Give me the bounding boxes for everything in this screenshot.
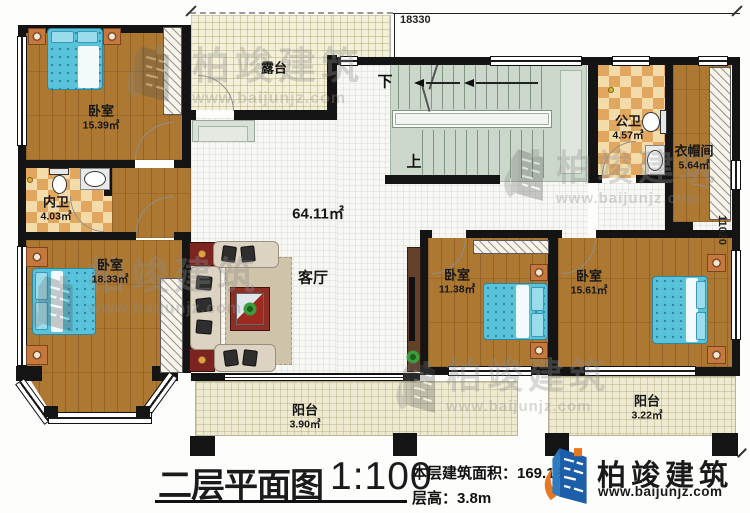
title-underline bbox=[155, 500, 407, 503]
room-name: 卧室 bbox=[571, 270, 608, 285]
bed-sheet bbox=[78, 46, 99, 88]
bed-pillow bbox=[696, 281, 706, 309]
room-name: 内卫 bbox=[41, 196, 72, 211]
wall bbox=[44, 406, 58, 417]
sofa-cushion bbox=[195, 319, 212, 334]
room-area: 5.64㎡ bbox=[674, 159, 713, 171]
stair-direction-line bbox=[476, 82, 538, 84]
roof-outline bbox=[190, 12, 393, 14]
floor-height-text: 层高：3.8m bbox=[412, 487, 491, 508]
wall bbox=[191, 110, 196, 120]
room-label-balcony-right: 阳台 3.22㎡ bbox=[632, 395, 663, 422]
living-area-label: 64.11㎡ bbox=[292, 205, 344, 222]
wall bbox=[420, 230, 432, 238]
wall bbox=[136, 406, 150, 417]
stair-railing bbox=[392, 110, 552, 128]
room-label-public-bath: 公卫 4.57㎡ bbox=[613, 115, 644, 142]
room-area: 15.61㎡ bbox=[571, 284, 608, 296]
sink-icon bbox=[84, 171, 106, 187]
room-name: 衣帽间 bbox=[674, 145, 713, 160]
wall bbox=[673, 222, 693, 230]
room-label-inner-bath: 内卫 4.03㎡ bbox=[41, 196, 72, 223]
nightstand bbox=[26, 345, 48, 365]
brand-logo-icon bbox=[538, 444, 592, 513]
bed-sheet bbox=[516, 285, 529, 338]
watermark-logo-icon bbox=[24, 265, 78, 348]
room-name: 阳台 bbox=[290, 404, 321, 419]
watermark-logo-icon bbox=[390, 356, 440, 423]
column bbox=[190, 436, 215, 456]
watermark-url: www.baijunjz.com bbox=[88, 300, 260, 318]
room-label-living: 客厅 bbox=[298, 269, 328, 286]
watermark-url: www.baijunjz.com bbox=[192, 90, 364, 108]
wall bbox=[18, 160, 135, 168]
room-name: 卧室 bbox=[83, 105, 120, 120]
room-label-balcony-left: 阳台 3.90㎡ bbox=[290, 404, 321, 431]
faucet-icon bbox=[27, 177, 33, 183]
dimension-tick bbox=[731, 5, 742, 16]
room-name: 阳台 bbox=[632, 395, 663, 410]
room-label-bedroom-bm: 卧室 11.38㎡ bbox=[439, 269, 475, 296]
window bbox=[731, 250, 741, 340]
room-area: 4.57㎡ bbox=[613, 129, 644, 141]
watermark: 柏竣建筑 www.baijunjz.com bbox=[192, 48, 364, 108]
stair-label-up: 上 bbox=[406, 151, 421, 172]
nightstand bbox=[28, 28, 46, 45]
watermark-logo-icon bbox=[498, 145, 548, 210]
wall bbox=[234, 110, 337, 120]
wall bbox=[385, 175, 500, 184]
window bbox=[17, 36, 27, 146]
terrace-step-inner bbox=[198, 126, 248, 142]
bed-pillow bbox=[696, 312, 706, 340]
wall bbox=[548, 238, 558, 367]
window bbox=[612, 56, 650, 66]
stair-direction-line bbox=[426, 82, 460, 84]
room-label-terrace: 露台 bbox=[261, 62, 287, 77]
nightstand bbox=[103, 28, 121, 45]
room-area: 15.39㎡ bbox=[83, 119, 120, 131]
watermark-name: 柏竣建筑 bbox=[446, 358, 610, 394]
toilet-icon bbox=[660, 110, 667, 134]
watermark-url: www.baijunjz.com bbox=[556, 190, 720, 207]
nightstand bbox=[26, 247, 48, 267]
column bbox=[393, 433, 417, 456]
wall bbox=[18, 232, 136, 240]
room-name: 客厅 bbox=[298, 269, 328, 286]
wall bbox=[182, 33, 191, 168]
room-name: 卧室 bbox=[92, 259, 129, 274]
closet bbox=[473, 240, 549, 254]
room-label-cloakroom: 衣帽间 5.64㎡ bbox=[674, 145, 713, 172]
stair-direction-arrow bbox=[414, 79, 424, 87]
faucet-icon bbox=[608, 87, 614, 93]
nightstand bbox=[707, 254, 726, 272]
room-name: 露台 bbox=[261, 62, 287, 77]
bed-pillow bbox=[51, 31, 74, 43]
bed-pillow bbox=[531, 313, 544, 337]
wall bbox=[466, 230, 562, 238]
wall bbox=[174, 160, 191, 168]
nightstand bbox=[707, 346, 726, 364]
toilet-icon bbox=[49, 168, 69, 175]
bed-pillow bbox=[531, 287, 544, 311]
toilet-icon bbox=[642, 112, 660, 132]
bed-pillow bbox=[77, 31, 98, 43]
floor-plan-page: 18330 11020 卧室 15.39㎡ 内卫 4.03㎡ 卧室 18.33㎡… bbox=[0, 0, 750, 513]
window bbox=[224, 374, 404, 381]
window bbox=[698, 56, 728, 66]
dimension-top: 18330 bbox=[400, 14, 431, 26]
side-table bbox=[189, 348, 215, 372]
watermark: 柏竣建筑 www.baijunjz.com bbox=[446, 358, 610, 415]
nightstand bbox=[530, 264, 548, 281]
room-area: 64.11㎡ bbox=[292, 205, 344, 222]
room-area: 11.38㎡ bbox=[439, 283, 475, 295]
dimension-tick bbox=[737, 448, 747, 458]
room-area: 3.90㎡ bbox=[290, 418, 321, 430]
room-name: 卧室 bbox=[439, 269, 475, 284]
dimension-right: 11020 bbox=[716, 215, 728, 245]
room-label-bedroom-br: 卧室 15.61㎡ bbox=[571, 270, 608, 297]
room-area: 3.22㎡ bbox=[632, 409, 663, 421]
toilet-icon bbox=[52, 175, 67, 194]
stair-label-down: 下 bbox=[377, 71, 392, 92]
watermark-url: www.baijunjz.com bbox=[446, 398, 610, 415]
watermark-logo-icon bbox=[120, 42, 174, 111]
dimension-line-corner bbox=[394, 14, 395, 58]
window bbox=[490, 56, 582, 66]
window bbox=[731, 160, 741, 190]
sofa-cushion bbox=[242, 349, 258, 367]
brand-url: www.baijunjz.com bbox=[598, 484, 723, 499]
room-label-bedroom-tl: 卧室 15.39㎡ bbox=[83, 105, 120, 132]
dimension-line bbox=[393, 13, 740, 14]
room-label-bedroom-bl: 卧室 18.33㎡ bbox=[92, 259, 129, 286]
room-area: 4.03㎡ bbox=[41, 210, 72, 222]
wall bbox=[16, 366, 42, 381]
room-area: 18.33㎡ bbox=[92, 273, 129, 285]
room-name: 公卫 bbox=[613, 115, 644, 130]
tv-icon bbox=[409, 277, 415, 341]
wall bbox=[420, 238, 428, 375]
sofa-cushion bbox=[223, 349, 239, 367]
stair-direction-arrow bbox=[464, 79, 474, 87]
